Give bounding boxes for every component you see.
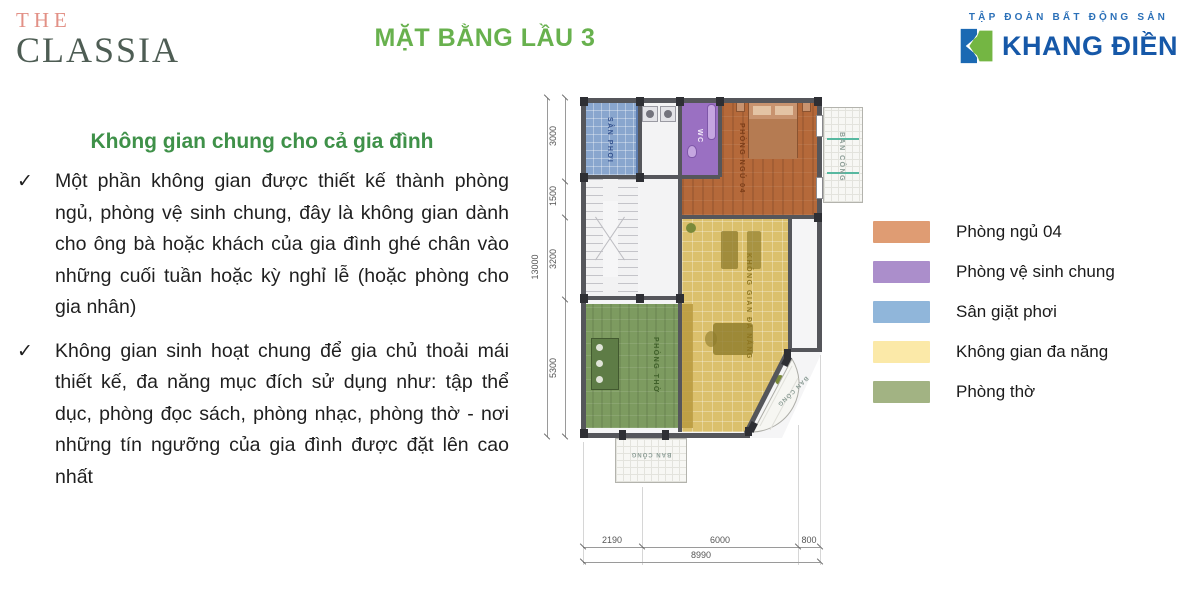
- wall: [581, 98, 822, 103]
- room-label-phong-ngu: PHÒNG NGỦ 04: [738, 123, 745, 194]
- legend-label: Sân giặt phơi: [956, 302, 1057, 322]
- gym-equipment-icon: [721, 231, 738, 269]
- legend-label: Phòng thờ: [956, 382, 1035, 402]
- legend-item: Phòng vệ sinh chung: [873, 261, 1115, 283]
- dim-bottom-3: 800: [779, 535, 839, 545]
- wall: [638, 100, 642, 177]
- khang-dien-brand: TẬP ĐOÀN BẤT ĐỘNG SẢN KHANG ĐIỀN: [959, 12, 1178, 64]
- window: [816, 115, 823, 137]
- page-title: MẶT BẰNG LẦU 3: [0, 24, 970, 53]
- toilet-icon: [687, 145, 697, 158]
- legend-item: Sân giặt phơi: [873, 301, 1115, 323]
- dim-left-total: 13000: [530, 245, 540, 289]
- floor-plan: BAN CÔNG BAN CÔNG BAN CÔNG SÂN PHƠI WC P…: [535, 85, 880, 590]
- room-laundry-corridor: [640, 100, 678, 303]
- balcony-label: BAN CÔNG: [616, 451, 686, 457]
- dim-bottom-total: 8990: [671, 550, 731, 560]
- legend-swatch-wc: [873, 261, 930, 283]
- dim-left-2: 1500: [548, 174, 558, 218]
- legend-label: Phòng vệ sinh chung: [956, 262, 1115, 282]
- legend-swatch-worship: [873, 381, 930, 403]
- slide: THE CLASSIA MẶT BẰNG LẦU 3 TẬP ĐOÀN BẤT …: [0, 0, 1200, 590]
- chair-icon: [705, 331, 717, 347]
- stair-treads: [618, 179, 638, 298]
- legend-label: Không gian đa năng: [956, 342, 1108, 362]
- room-label-da-nang: KHÔNG GIAN ĐA NĂNG: [745, 253, 752, 360]
- wall: [718, 100, 722, 177]
- window: [816, 177, 823, 199]
- bathtub-icon: [707, 104, 716, 140]
- room-label-wc: WC: [696, 129, 703, 144]
- check-icon: ✓: [17, 166, 33, 198]
- balcony-right: BAN CÔNG: [823, 107, 863, 203]
- plant-icon: [686, 223, 696, 233]
- bullet-text: Không gian sinh hoạt chung để gia chủ th…: [55, 340, 509, 488]
- balcony-bottom: BAN CÔNG: [615, 438, 687, 483]
- wall: [788, 219, 792, 352]
- staircase: [583, 179, 638, 298]
- room-bedroom-04-entry: [682, 177, 722, 215]
- legend-swatch-bedroom: [873, 221, 930, 243]
- section-heading: Không gian chung cho cả gia đình: [15, 130, 509, 154]
- wall: [678, 100, 682, 432]
- nightstand-icon: [802, 102, 811, 112]
- legend-label: Phòng ngủ 04: [956, 222, 1062, 242]
- wall: [581, 296, 682, 300]
- cabinet-icon: [682, 304, 693, 428]
- brand-name: KHANG ĐIỀN: [1002, 31, 1178, 62]
- bullet-item: ✓ Không gian sinh hoạt chung để gia chủ …: [15, 336, 509, 494]
- legend-item: Phòng ngủ 04: [873, 221, 1115, 243]
- bullet-item: ✓ Một phần không gian được thiết kế thàn…: [15, 166, 509, 324]
- dim-left-4: 5300: [548, 346, 558, 390]
- bed-icon: [748, 102, 798, 158]
- room-label-phong-tho: PHÒNG THỜ: [652, 337, 659, 393]
- check-icon: ✓: [17, 336, 33, 368]
- balcony-label: BAN CÔNG: [838, 132, 845, 182]
- description-block: Không gian chung cho cả gia đình ✓ Một p…: [15, 130, 509, 505]
- khang-dien-logo-icon: [959, 28, 995, 64]
- legend-item: Không gian đa năng: [873, 341, 1115, 363]
- legend: Phòng ngủ 04 Phòng vệ sinh chung Sân giặ…: [873, 221, 1115, 421]
- wall: [581, 98, 586, 438]
- legend-swatch-multipurpose: [873, 341, 930, 363]
- nightstand-icon: [736, 102, 745, 112]
- dim-left-3: 3200: [548, 237, 558, 281]
- legend-swatch-laundry: [873, 301, 930, 323]
- washing-machine-icon: [660, 106, 676, 122]
- stair-landing: [603, 201, 618, 277]
- altar-icon: [591, 338, 619, 390]
- dim-bottom-2: 6000: [690, 535, 750, 545]
- bullet-text: Một phần không gian được thiết kế thành …: [55, 170, 509, 318]
- brand-tagline: TẬP ĐOÀN BẤT ĐỘNG SẢN: [959, 12, 1178, 23]
- wall: [678, 215, 822, 219]
- stair-treads: [583, 179, 603, 298]
- dim-left-1: 3000: [548, 114, 558, 158]
- legend-item: Phòng thờ: [873, 381, 1115, 403]
- dim-bottom-1: 2190: [582, 535, 642, 545]
- washing-machine-icon: [642, 106, 658, 122]
- room-label-san-phoi: SÂN PHƠI: [606, 117, 613, 163]
- wall: [583, 175, 720, 179]
